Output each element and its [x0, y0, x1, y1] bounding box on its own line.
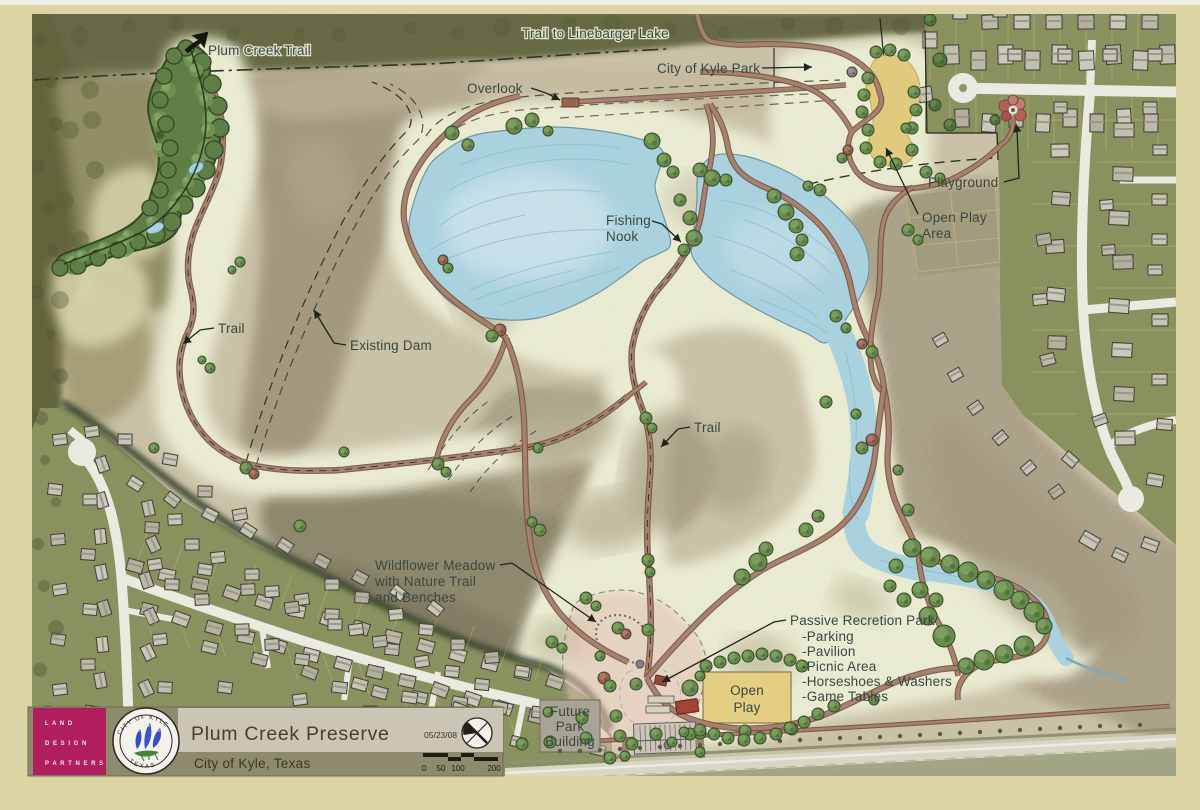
svg-text:Existing Dam: Existing Dam [350, 338, 432, 353]
svg-text:City of Kyle, Texas: City of Kyle, Texas [194, 756, 311, 771]
svg-text:100: 100 [451, 764, 465, 773]
svg-text:P A R T N E R S: P A R T N E R S [45, 761, 104, 767]
svg-text:-Game Tables: -Game Tables [802, 689, 888, 704]
svg-text:Trail: Trail [694, 420, 721, 435]
svg-text:L A N D: L A N D [45, 721, 73, 727]
svg-text:Nook: Nook [606, 229, 638, 244]
svg-text:-Picnic Area: -Picnic Area [802, 659, 877, 674]
svg-text:Plum Creek Trail: Plum Creek Trail [208, 43, 311, 58]
svg-text:Plum Creek Preserve: Plum Creek Preserve [191, 723, 390, 745]
svg-text:Trail to Linebarger Lake: Trail to Linebarger Lake [522, 26, 669, 41]
svg-text:and Benches: and Benches [375, 590, 456, 605]
svg-text:D E S I G N: D E S I G N [45, 741, 87, 747]
svg-text:Play: Play [733, 700, 760, 715]
svg-text:Trail: Trail [218, 321, 245, 336]
svg-text:0: 0 [422, 764, 427, 773]
svg-text:Park: Park [556, 719, 585, 734]
svg-text:Open Play: Open Play [922, 210, 987, 225]
svg-text:-Parking: -Parking [802, 629, 854, 644]
svg-text:Fishing: Fishing [606, 213, 651, 228]
svg-text:City of Kyle Park: City of Kyle Park [657, 61, 760, 76]
svg-text:with Nature Trail: with Nature Trail [374, 574, 476, 589]
svg-text:200: 200 [487, 764, 501, 773]
svg-text:Future: Future [550, 704, 590, 719]
svg-text:-Pavilion: -Pavilion [802, 644, 856, 659]
svg-text:05/23/08: 05/23/08 [424, 730, 457, 740]
svg-text:50: 50 [437, 764, 446, 773]
svg-text:Playground: Playground [928, 175, 998, 190]
svg-text:Area: Area [922, 226, 952, 241]
svg-text:Building: Building [545, 734, 595, 749]
svg-text:Open: Open [730, 683, 764, 698]
svg-text:Passive Recretion Park: Passive Recretion Park [790, 613, 935, 628]
svg-text:Overlook: Overlook [467, 81, 523, 96]
svg-text:Wildflower Meadow: Wildflower Meadow [375, 558, 495, 573]
svg-text:-Horseshoes & Washers: -Horseshoes & Washers [802, 674, 952, 689]
